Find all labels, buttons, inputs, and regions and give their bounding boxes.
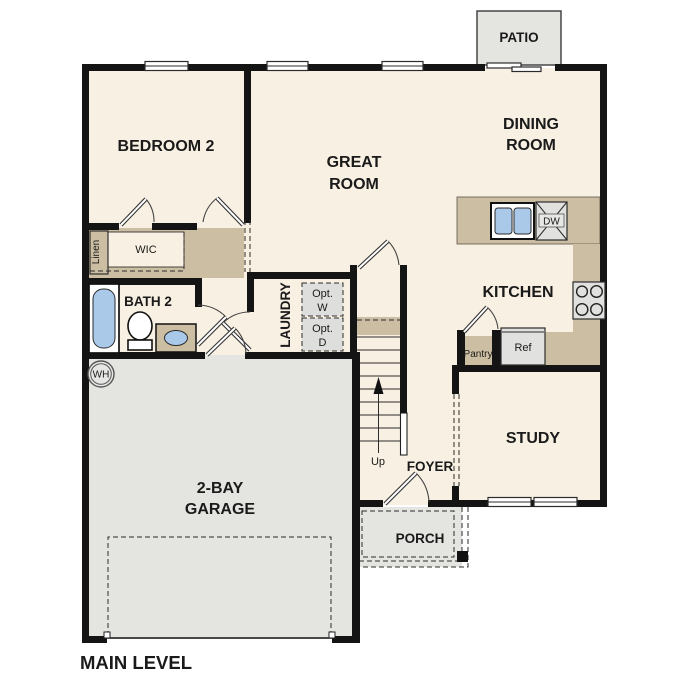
wall-segment [555,64,607,71]
stove [573,282,605,319]
ref-label: Ref [514,342,532,354]
floorplan-svg: DW Ref Pantry WH [0,0,687,687]
label-dining-room-1: DINING [503,116,559,133]
wall-segment [188,64,267,71]
label-great-room-1: GREAT [327,154,382,171]
wall-kitchen-bottom [452,365,607,372]
wall-segment [577,500,607,507]
label-laundry: LAUNDRY [278,282,293,348]
label-kitchen: KITCHEN [482,284,553,301]
label-wic: WIC [135,244,156,256]
label-dining-room-2: ROOM [506,137,556,154]
label-bath2: BATH 2 [124,294,172,309]
opt-washer-label-2: W [317,302,328,314]
window [267,62,308,71]
wall-segment [428,500,488,507]
label-up: Up [371,456,385,468]
opt-washer-label-1: Opt. [312,288,333,300]
wall-laundry-left [247,279,254,312]
label-study: STUDY [506,430,561,447]
bathtub [89,284,119,353]
opt-dryer-label-1: Opt. [312,323,333,335]
wall-segment [352,500,383,507]
wall-segment [308,64,382,71]
wall-garage-right [352,352,360,643]
wall-bedroom-right [244,64,251,218]
garage-slab [85,355,355,639]
wall-study-left-top [452,372,459,394]
wall-segment [82,64,145,71]
label-great-room-2: ROOM [329,176,379,193]
kitchen-sink [491,203,534,239]
wall-segment [423,64,485,71]
wall-garage-bottom2 [332,636,360,643]
label-foyer: FOYER [407,459,454,474]
dishwasher: DW [536,202,567,240]
dw-label: DW [543,217,560,228]
wall-garage-top2 [245,352,360,359]
wall-bath-right [195,278,202,307]
wh-label: WH [93,370,110,381]
label-linen: Linen [91,240,102,264]
window [382,62,423,71]
label-garage-2: GARAGE [185,501,256,518]
pantry-label: Pantry [464,349,493,360]
window [488,498,531,507]
porch-post [457,551,468,562]
refrigerator: Ref [501,328,545,365]
wall-stair-left [350,265,357,352]
toilet [128,312,152,350]
wall-pantry-right [492,330,501,365]
wall-segment [152,223,197,230]
stair-railing [401,413,408,455]
water-heater: WH [88,361,114,387]
bath-vanity [156,324,196,352]
plan-title: MAIN LEVEL [80,652,192,673]
window [145,62,188,71]
label-patio: PATIO [499,30,538,45]
window [534,498,577,507]
label-porch: PORCH [396,531,445,546]
wall-segment [82,223,119,230]
floorplan-canvas: DW Ref Pantry WH [0,0,687,687]
garage-door-post [329,632,335,638]
wall-garage-bottom [82,636,107,643]
wall-laundry-top [247,272,357,279]
label-garage-1: 2-BAY [197,480,244,497]
garage-door-post [104,632,110,638]
opt-dryer-label-2: D [319,337,327,349]
wall-stair-right [400,265,407,413]
label-bedroom2: BEDROOM 2 [118,138,215,155]
